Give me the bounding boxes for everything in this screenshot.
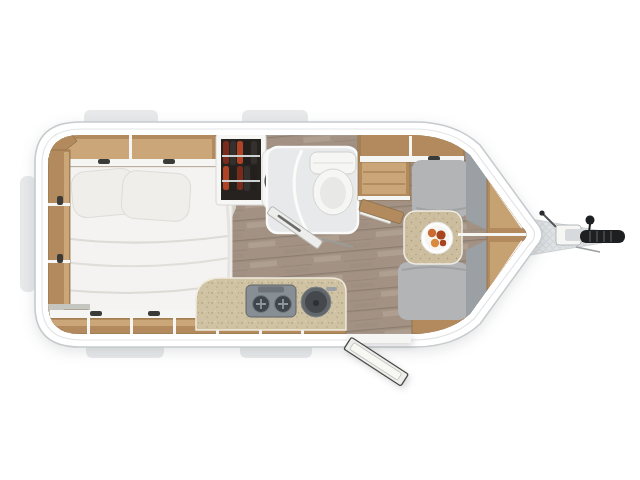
hitch-cable xyxy=(576,247,600,252)
hitch-handle xyxy=(580,230,625,243)
rod-ball xyxy=(539,210,544,215)
wardrobe-rail xyxy=(222,180,260,182)
cabinet-lip xyxy=(50,159,216,166)
tall-cabinet-base xyxy=(358,196,410,200)
overhead-cabinet-inner xyxy=(55,139,212,160)
ledge-latch xyxy=(90,311,102,316)
coupler-plate xyxy=(565,229,582,241)
kitchen xyxy=(196,278,346,330)
cabinet-latch xyxy=(163,159,175,164)
shelf-latch xyxy=(57,196,63,205)
window-bump-left-side xyxy=(20,176,36,292)
left-shelf-face xyxy=(64,152,69,316)
wardrobe-with-clothes xyxy=(216,134,266,205)
caravan-floor-plan xyxy=(0,0,640,480)
wardrobe-rail xyxy=(222,155,260,157)
ledge-latch xyxy=(148,311,160,316)
dinette-bench-bottom xyxy=(398,262,468,320)
bathroom xyxy=(267,147,358,249)
jockey-knob xyxy=(586,216,595,225)
sink-drain xyxy=(313,300,319,306)
bottom-ledge xyxy=(50,310,196,318)
hitch-assembly xyxy=(530,210,625,255)
entry-door-open xyxy=(344,334,411,386)
stove-control-panel xyxy=(258,287,284,293)
toilet-seat xyxy=(320,177,346,209)
floor-plan-canvas xyxy=(0,0,640,480)
interior xyxy=(40,128,540,343)
kitchen-faucet xyxy=(326,287,337,291)
shelf-latch xyxy=(57,254,63,263)
pillow-right xyxy=(120,170,191,223)
door-leaf-panel xyxy=(350,342,402,380)
plate-inner xyxy=(425,226,450,251)
cabinet-latch xyxy=(98,159,110,164)
